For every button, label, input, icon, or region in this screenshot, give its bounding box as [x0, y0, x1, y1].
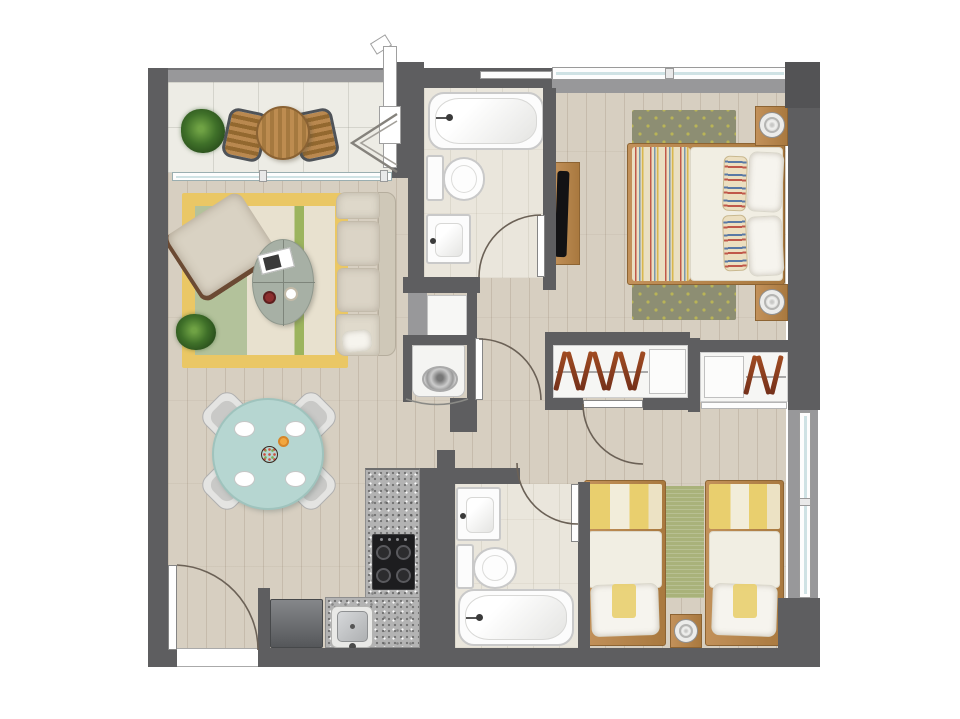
- wall-corner-tr: [785, 62, 820, 108]
- clothes-hanger-icon: [631, 351, 646, 391]
- clothes-hanger-icon: [618, 351, 634, 391]
- wall-left: [148, 68, 168, 648]
- sofa-cushion: [337, 221, 380, 266]
- wardrobe-left-hangers: [558, 349, 648, 395]
- wall-niche-left: [403, 337, 412, 402]
- bedroom2-rug: [666, 486, 704, 598]
- juice-glass: [278, 436, 289, 447]
- sofa-arm-top: [336, 192, 380, 219]
- wardrobe-shelf: [704, 356, 744, 398]
- bathtub: [458, 589, 574, 646]
- toilet-bowl: [473, 547, 517, 589]
- wall-bath1-left: [408, 88, 424, 280]
- bistro-table: [256, 106, 310, 160]
- wall-hall-chunk: [450, 398, 477, 432]
- wall-closetL-top: [545, 332, 690, 345]
- wardrobe-right-hangers: [748, 353, 786, 399]
- clothes-hanger-icon: [592, 351, 608, 391]
- clothes-hanger-icon: [769, 355, 784, 395]
- bowl: [263, 291, 276, 304]
- wall-bath2-top: [437, 468, 520, 484]
- wall-niche-mid: [403, 335, 472, 345]
- bed2-blanket: [709, 484, 780, 529]
- wardrobe-shelf: [649, 349, 686, 394]
- bolster-pillow: [722, 156, 748, 212]
- niche-fill: [408, 293, 427, 337]
- master-pillow: [746, 215, 784, 277]
- wall-closetL-bottom: [643, 398, 690, 410]
- wall-bottom: [258, 648, 794, 667]
- wall-bottom: [148, 648, 177, 667]
- bed2-duvet: [588, 531, 662, 588]
- wall-closetR-top: [697, 340, 788, 352]
- toilet-tank: [456, 544, 474, 589]
- washbasin: [456, 487, 501, 541]
- clothes-hanger-icon: [605, 351, 620, 391]
- floor-plan: [0, 0, 960, 719]
- plant-icon: [181, 109, 225, 153]
- wall-right-master: [788, 108, 820, 410]
- pillow-accent: [612, 584, 636, 618]
- vent-pipe-box: [379, 106, 401, 144]
- master-pillow: [746, 151, 784, 213]
- window-mullion: [665, 68, 674, 79]
- cooktop: [372, 534, 415, 590]
- wall-kitchen-right: [420, 468, 437, 648]
- table-plank-line: [253, 282, 315, 283]
- master-bed-blanket: [632, 147, 690, 281]
- master-bedroom-door: [583, 400, 643, 408]
- plant-icon: [176, 314, 216, 350]
- clothes-hanger-icon: [566, 351, 582, 391]
- table-lamp: [674, 619, 698, 643]
- entrance-threshold: [177, 648, 258, 667]
- toilet-tank: [426, 155, 444, 201]
- place-setting: [285, 471, 306, 487]
- place-setting: [234, 421, 255, 437]
- bathroom1-door: [537, 215, 545, 277]
- refrigerator: [270, 599, 323, 648]
- sliding-door-handle: [259, 170, 267, 182]
- sliding-door: [172, 172, 392, 181]
- wardrobe-sliding-door: [701, 402, 787, 409]
- table-lamp: [759, 289, 785, 315]
- bed2-duvet: [709, 531, 780, 588]
- bathtub: [428, 92, 544, 150]
- wall-fridge-stub: [258, 588, 270, 648]
- bolster-pillow: [722, 215, 748, 272]
- storage-shelf: [427, 295, 467, 337]
- place-setting: [234, 471, 255, 487]
- sofa-back: [378, 192, 396, 356]
- sofa-cushion: [337, 268, 380, 312]
- bath1-vent-window: [480, 71, 552, 79]
- sofa-pillow: [341, 328, 373, 353]
- bed2-blanket: [588, 484, 662, 529]
- sliding-door-handle: [380, 170, 388, 182]
- clothes-hanger-icon: [579, 351, 594, 391]
- wall-bath2-right: [578, 482, 590, 648]
- washbasin: [426, 214, 471, 264]
- table-lamp: [759, 112, 785, 138]
- entrance-door: [168, 565, 177, 650]
- cup: [284, 287, 298, 301]
- window-mullion: [799, 498, 811, 506]
- wall-closetL-bottom: [545, 398, 583, 410]
- pillow-accent: [733, 584, 757, 618]
- wall-master-window-band: [552, 80, 788, 93]
- toilet-bowl: [443, 157, 485, 201]
- place-setting: [285, 421, 306, 437]
- kitchen-sink: [331, 606, 373, 648]
- balcony-parapet: [168, 68, 398, 82]
- wall-corner-br: [778, 598, 820, 667]
- salad-bowl: [261, 446, 278, 463]
- bathroom2-door: [571, 484, 579, 542]
- washing-machine: [412, 345, 465, 397]
- clothes-hanger-icon: [756, 355, 772, 395]
- hallway-door: [475, 338, 483, 400]
